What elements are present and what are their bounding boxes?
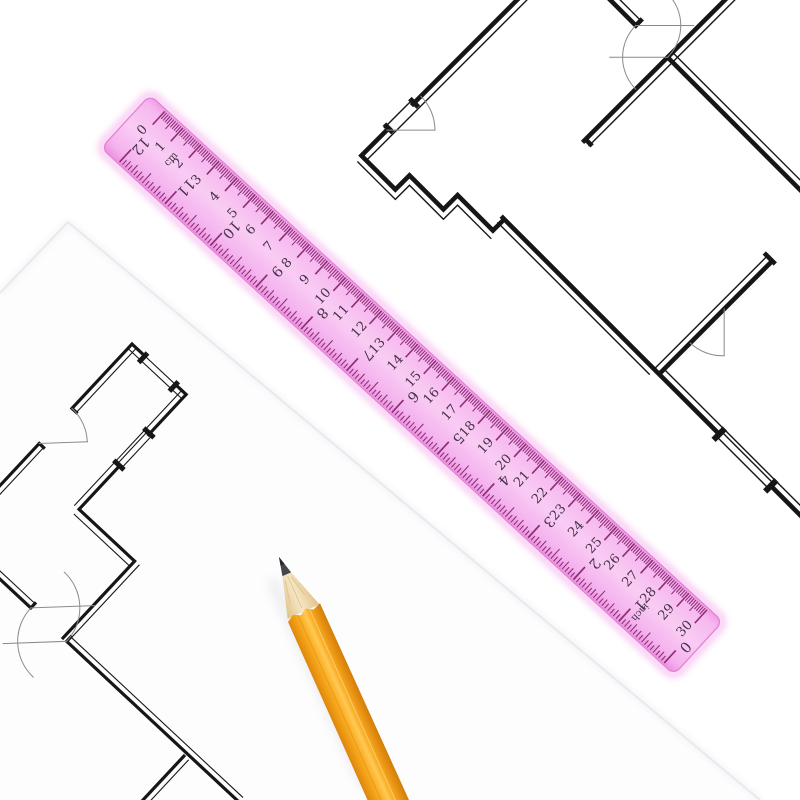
door-arc xyxy=(636,0,700,57)
scene: 0123456789101112131415161718192021222324… xyxy=(0,0,800,800)
wall-lines-thick xyxy=(361,0,800,560)
photo-canvas: 0123456789101112131415161718192021222324… xyxy=(0,0,800,800)
door-leaf xyxy=(387,106,435,154)
